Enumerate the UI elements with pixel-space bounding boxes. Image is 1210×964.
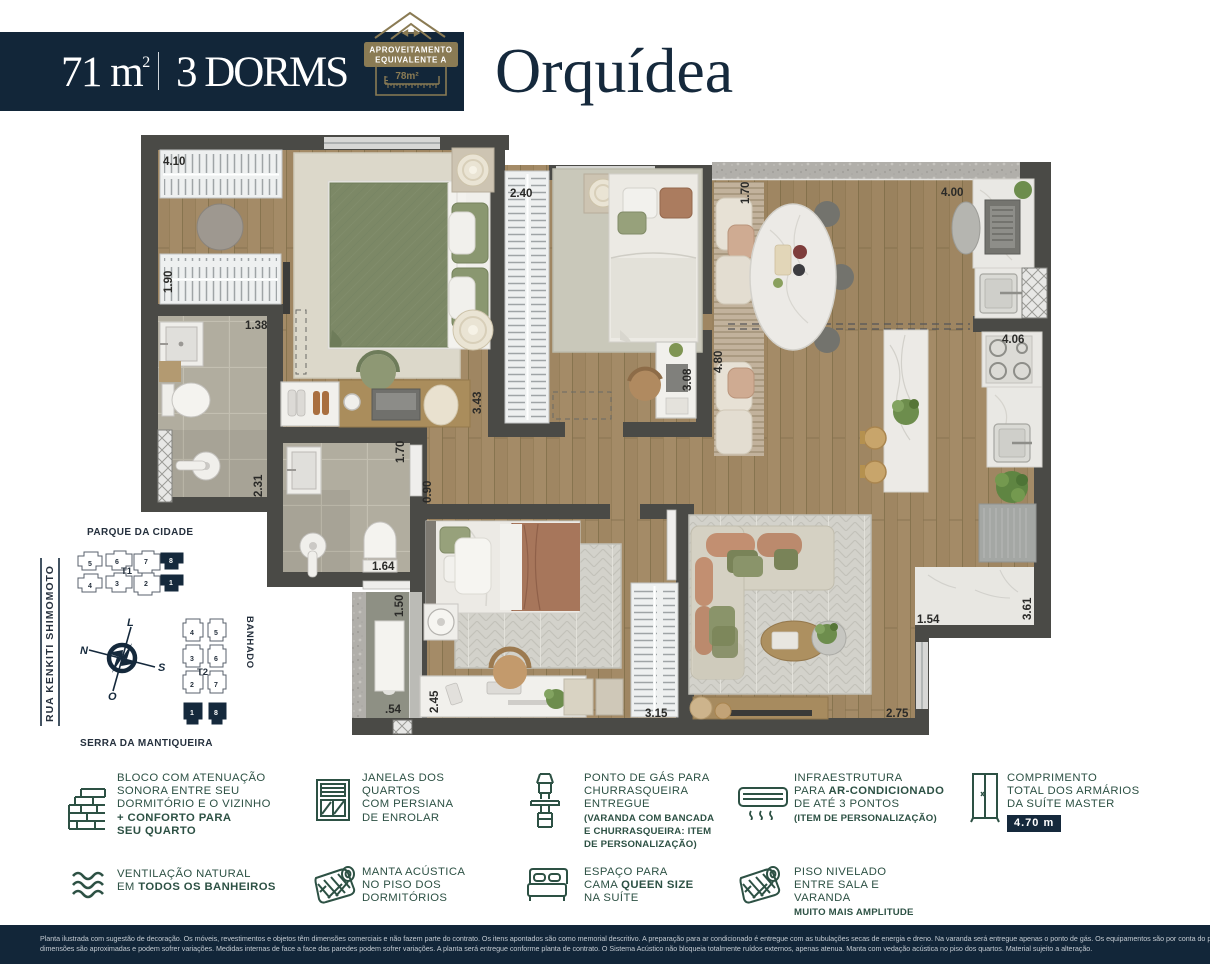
svg-text:4: 4 [190, 630, 194, 637]
svg-text:2.40: 2.40 [510, 188, 532, 200]
svg-text:T2: T2 [197, 667, 208, 678]
svg-text:2: 2 [190, 682, 194, 689]
svg-text:N: N [80, 645, 89, 657]
svg-text:6: 6 [115, 559, 119, 566]
svg-text:4.00: 4.00 [941, 187, 963, 199]
svg-text:PARQUE DA CIDADE: PARQUE DA CIDADE [87, 527, 193, 538]
svg-text:1.54: 1.54 [917, 614, 940, 626]
svg-text:SERRA DA MANTIQUEIRA: SERRA DA MANTIQUEIRA [80, 738, 213, 749]
svg-text:EQUIVALENTE A: EQUIVALENTE A [375, 56, 447, 65]
svg-text:1.70: 1.70 [740, 182, 752, 204]
svg-text:1.64: 1.64 [372, 561, 395, 573]
svg-text:2.31: 2.31 [253, 474, 265, 497]
svg-text:8: 8 [169, 558, 173, 565]
svg-text:1.50: 1.50 [394, 595, 406, 617]
svg-text:4.80: 4.80 [713, 351, 725, 373]
svg-text:3.08: 3.08 [682, 368, 694, 391]
svg-text:S: S [158, 662, 166, 674]
svg-text:O: O [108, 691, 117, 703]
svg-text:1: 1 [190, 710, 194, 717]
svg-text:4: 4 [88, 583, 92, 590]
svg-text:8: 8 [214, 710, 218, 717]
svg-text:3.15: 3.15 [645, 708, 668, 720]
svg-text:3: 3 [190, 656, 194, 663]
svg-text:4.10: 4.10 [163, 156, 185, 168]
svg-text:3: 3 [115, 581, 119, 588]
svg-text:BANHADO: BANHADO [244, 616, 255, 669]
svg-text:3.61: 3.61 [1022, 597, 1034, 620]
svg-text:2.75: 2.75 [886, 708, 909, 720]
svg-text:7: 7 [214, 682, 218, 689]
svg-text:RUA KENKITI SHIMOMOTO: RUA KENKITI SHIMOMOTO [44, 565, 56, 722]
svg-text:1.38: 1.38 [245, 320, 268, 332]
svg-text:6: 6 [214, 656, 218, 663]
svg-text:1: 1 [169, 580, 173, 587]
svg-text:5: 5 [214, 630, 218, 637]
svg-text:2: 2 [144, 581, 148, 588]
svg-text:5: 5 [88, 561, 92, 568]
svg-text:APROVEITAMENTO: APROVEITAMENTO [369, 46, 452, 55]
svg-text:0.90: 0.90 [422, 481, 434, 503]
svg-text:4.06: 4.06 [1002, 334, 1024, 346]
svg-text:1.90: 1.90 [163, 271, 175, 293]
svg-text:2.45: 2.45 [429, 690, 441, 713]
svg-text:T1: T1 [121, 566, 133, 577]
svg-text:1.70: 1.70 [395, 441, 407, 463]
svg-text:78m²: 78m² [395, 71, 419, 82]
svg-text:.54: .54 [385, 704, 402, 716]
svg-text:7: 7 [144, 559, 148, 566]
svg-text:L: L [127, 617, 134, 629]
svg-text:3.43: 3.43 [472, 392, 484, 414]
